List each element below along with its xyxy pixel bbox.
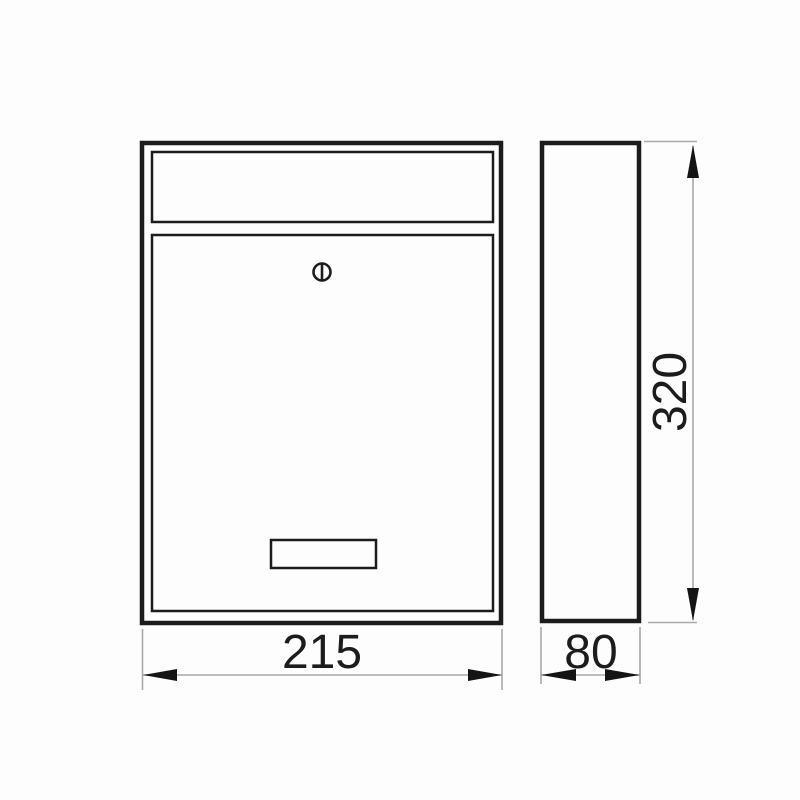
mailbox-technical-drawing: 215 80 320 bbox=[0, 0, 800, 800]
front-view bbox=[142, 143, 501, 623]
depth-dimension-label: 80 bbox=[564, 626, 617, 679]
height-dimension: 320 bbox=[644, 142, 699, 623]
width-dimension-label: 215 bbox=[282, 626, 362, 679]
width-dimension: 215 bbox=[143, 626, 503, 690]
front-door-panel bbox=[152, 235, 493, 611]
depth-dimension: 80 bbox=[541, 626, 640, 684]
arrow-right-icon bbox=[468, 669, 502, 681]
arrow-down-icon bbox=[687, 588, 699, 621]
arrow-left-icon bbox=[143, 669, 177, 681]
side-body-outline bbox=[542, 143, 639, 621]
mail-slot-flap bbox=[152, 152, 493, 222]
arrow-up-icon bbox=[687, 145, 699, 178]
nameplate bbox=[271, 540, 376, 568]
drawing-canvas: 215 80 320 bbox=[0, 0, 800, 800]
side-view bbox=[542, 143, 639, 621]
lock-icon bbox=[314, 264, 331, 281]
height-dimension-label: 320 bbox=[644, 352, 697, 432]
front-body-outline bbox=[142, 143, 501, 623]
